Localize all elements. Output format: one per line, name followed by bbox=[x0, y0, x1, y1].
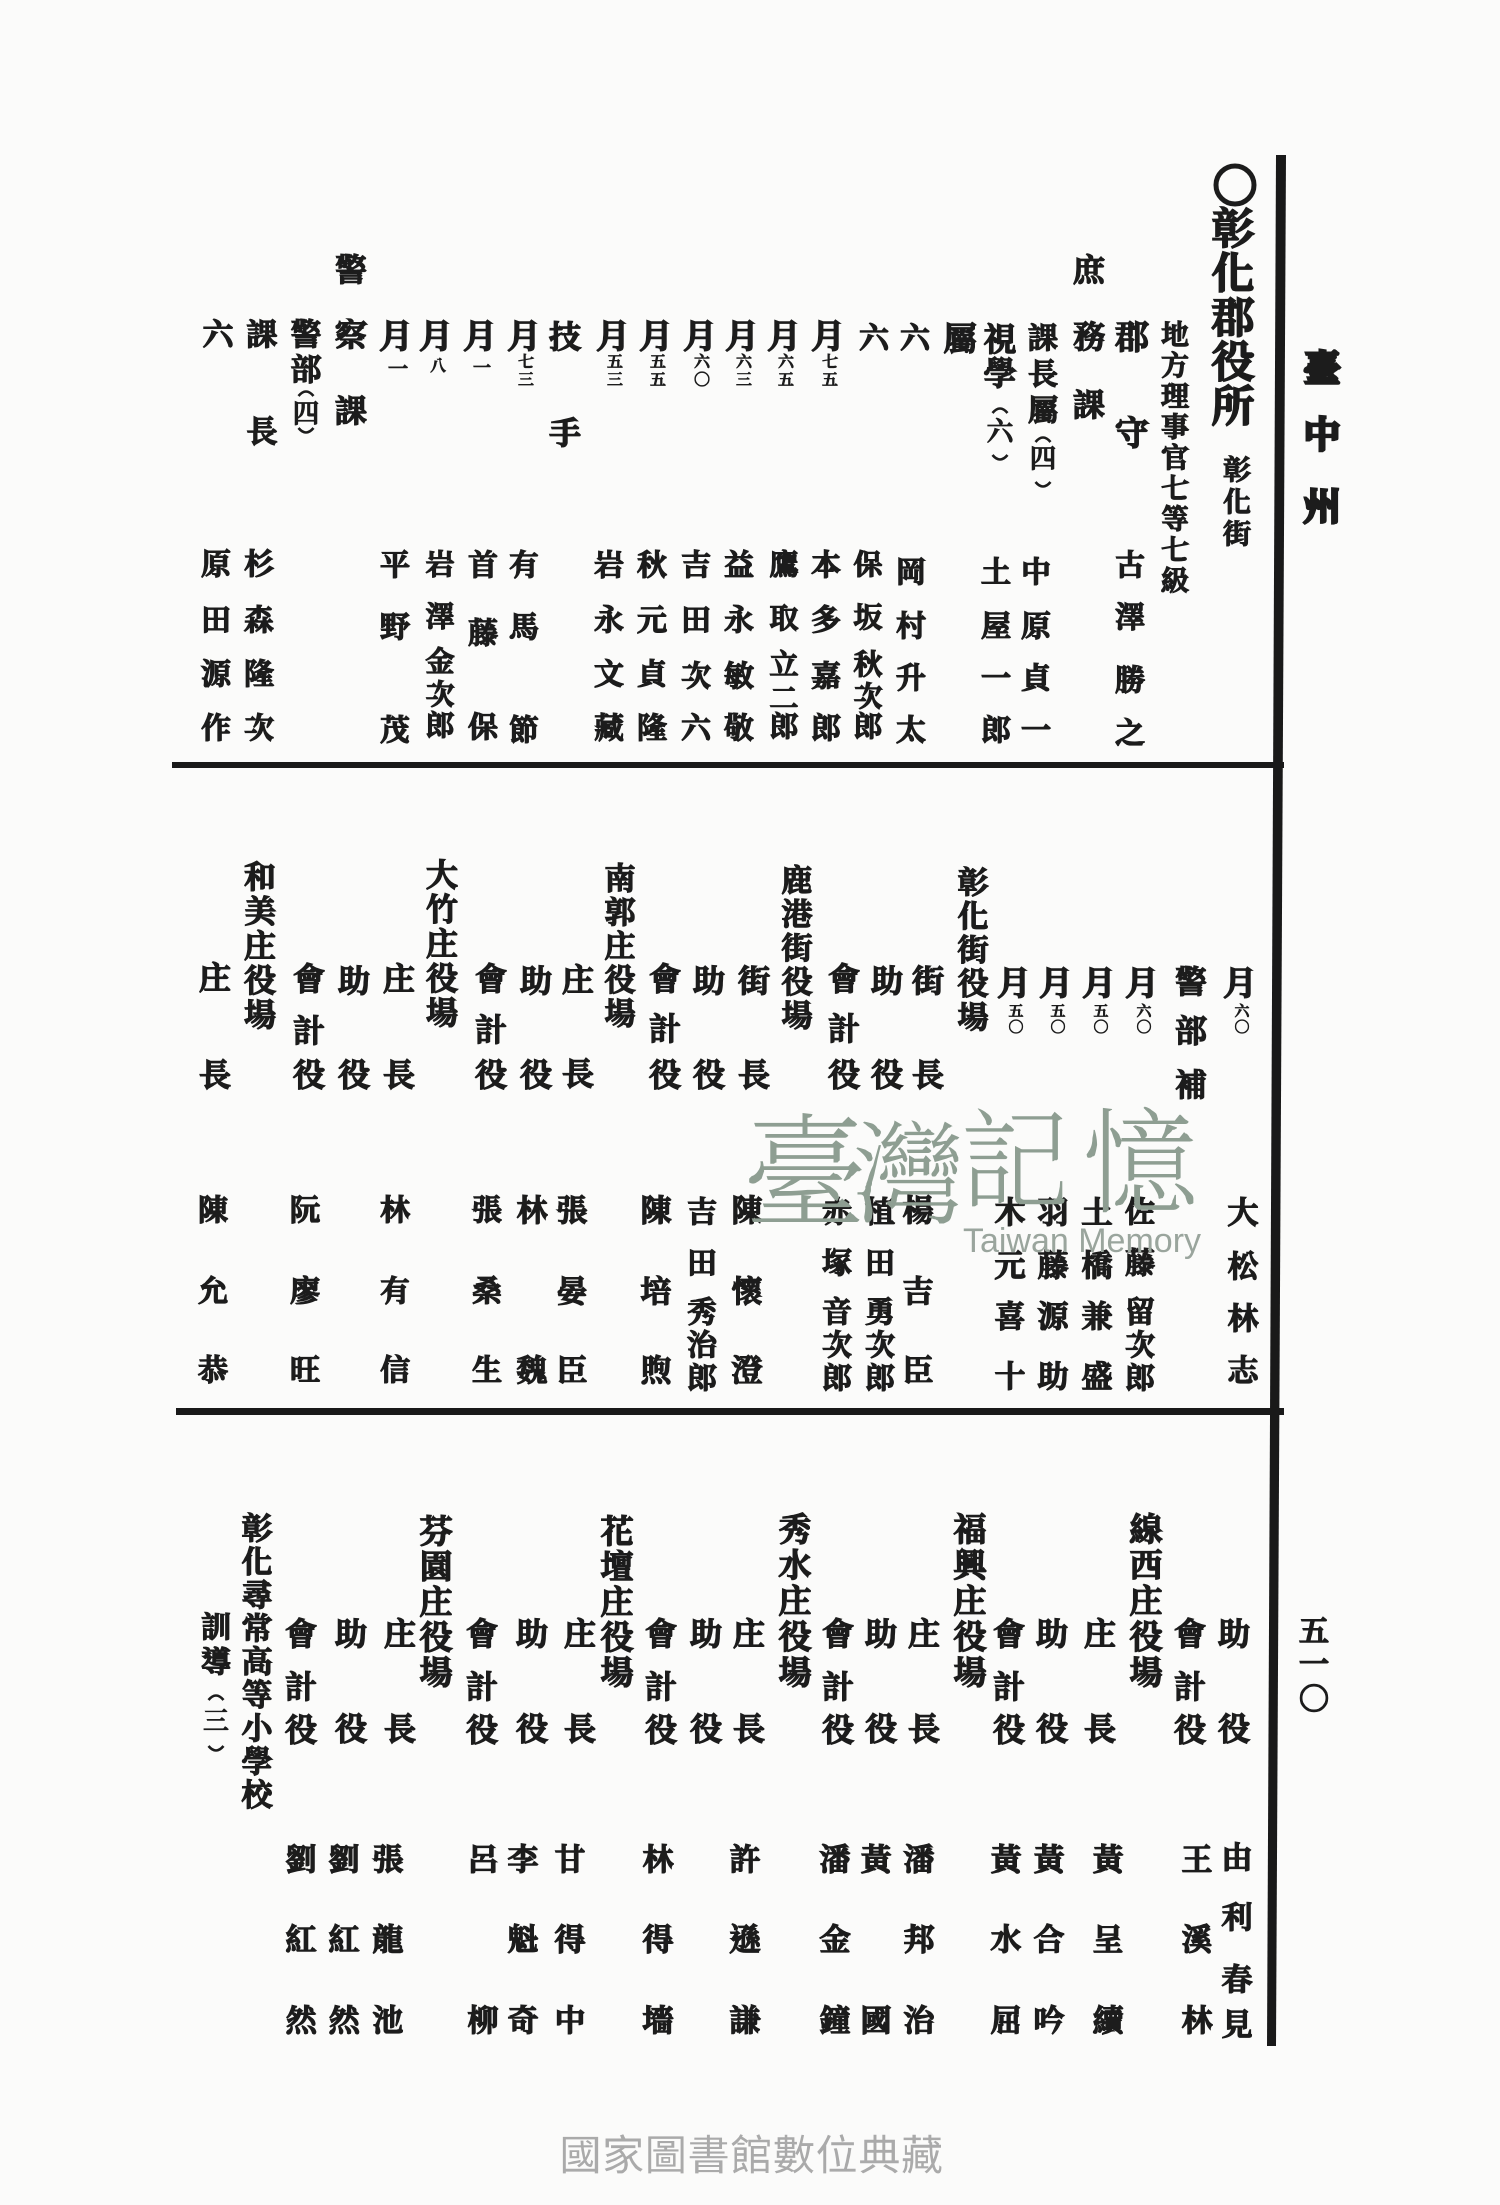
svg-text:Taiwan Memory: Taiwan Memory bbox=[963, 1222, 1201, 1260]
